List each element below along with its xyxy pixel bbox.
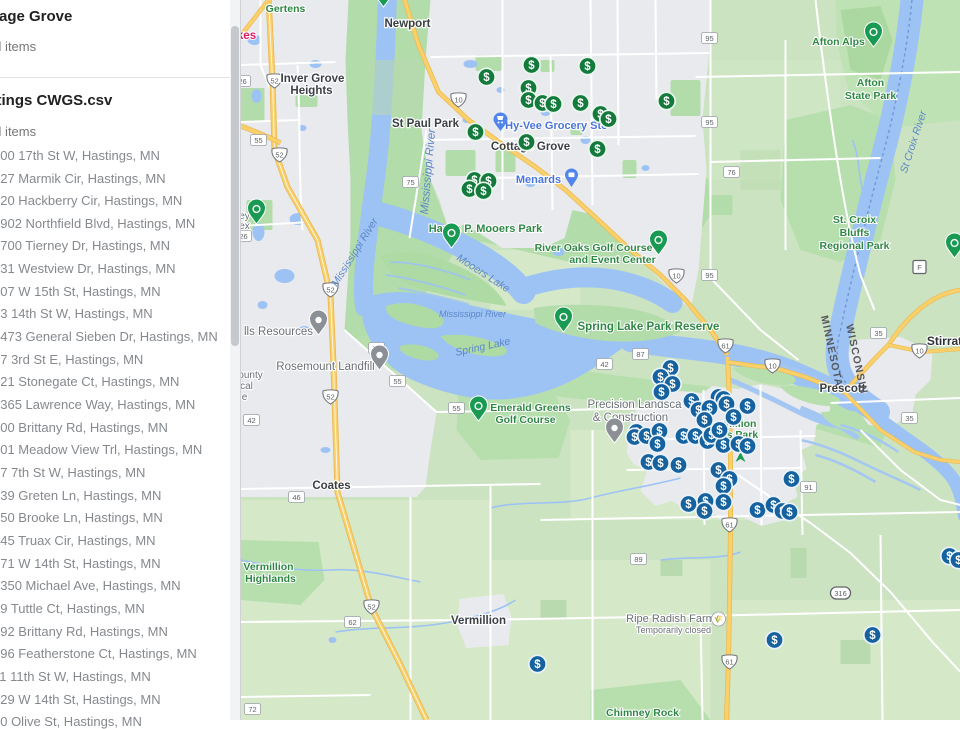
svg-text:Newport: Newport xyxy=(385,18,431,30)
svg-text:ounty: ounty xyxy=(241,370,263,381)
svg-text:and Event Center: and Event Center xyxy=(569,254,655,266)
svg-text:42: 42 xyxy=(600,360,608,369)
svg-text:52: 52 xyxy=(326,286,334,295)
svg-text:Highlands: Highlands xyxy=(245,573,296,585)
svg-text:95: 95 xyxy=(705,118,713,127)
svg-text:55: 55 xyxy=(393,377,401,386)
svg-text:Emerald Greens: Emerald Greens xyxy=(490,402,571,414)
svg-text:Bluffs: Bluffs xyxy=(840,227,870,239)
svg-text:42: 42 xyxy=(247,416,255,425)
svg-text:52: 52 xyxy=(326,393,334,402)
svg-text:F: F xyxy=(917,263,922,272)
svg-text:lls Resources: lls Resources xyxy=(244,326,313,338)
svg-text:Afton: Afton xyxy=(857,77,884,89)
svg-text:kes: kes xyxy=(241,30,256,42)
svg-text:Coates: Coates xyxy=(312,480,350,492)
svg-text:76: 76 xyxy=(727,168,735,177)
svg-text:61: 61 xyxy=(725,521,733,530)
svg-text:Vermillion: Vermillion xyxy=(243,561,293,573)
svg-text:St. Croix: St. Croix xyxy=(833,214,876,226)
svg-text:10: 10 xyxy=(672,272,680,281)
svg-text:91: 91 xyxy=(804,483,812,492)
svg-text:72: 72 xyxy=(248,705,256,714)
svg-text:10: 10 xyxy=(915,347,923,356)
svg-text:35: 35 xyxy=(874,329,882,338)
svg-text:52: 52 xyxy=(367,603,375,612)
svg-text:State Park: State Park xyxy=(845,90,897,102)
svg-text:Temporarily closed: Temporarily closed xyxy=(636,625,711,635)
svg-text:Stirrat: Stirrat xyxy=(927,334,960,348)
svg-text:52: 52 xyxy=(275,151,283,160)
svg-text:Inver Grove: Inver Grove xyxy=(281,73,345,85)
svg-text:75: 75 xyxy=(406,178,414,187)
svg-text:62: 62 xyxy=(348,618,356,627)
svg-text:Hy-Vee Grocery Sto: Hy-Vee Grocery Sto xyxy=(505,120,608,132)
svg-text:61: 61 xyxy=(725,658,733,667)
svg-text:Regional Park: Regional Park xyxy=(819,240,889,252)
svg-text:🌾: 🌾 xyxy=(714,615,723,624)
svg-text:Heights: Heights xyxy=(290,85,332,97)
svg-text:55: 55 xyxy=(254,136,262,145)
svg-text:55: 55 xyxy=(452,404,460,413)
svg-text:Chimney Rock: Chimney Rock xyxy=(606,707,679,719)
svg-text:61: 61 xyxy=(721,342,729,351)
svg-text:95: 95 xyxy=(705,271,713,280)
svg-text:St Paul Park: St Paul Park xyxy=(392,118,460,130)
svg-text:Golf Course: Golf Course xyxy=(495,414,555,426)
svg-text:10: 10 xyxy=(454,96,462,105)
svg-text:ex: ex xyxy=(241,221,250,232)
svg-text:Gertens: Gertens xyxy=(266,3,306,15)
svg-text:Mississippi River: Mississippi River xyxy=(439,309,507,319)
svg-text:Precision Landsca: Precision Landsca xyxy=(588,399,683,411)
svg-text:10: 10 xyxy=(768,362,776,371)
svg-text:Rosemount Landfill: Rosemount Landfill xyxy=(276,361,374,373)
svg-text:Ripe Radish Farm: Ripe Radish Farm xyxy=(626,613,715,625)
svg-text:35: 35 xyxy=(905,414,913,423)
svg-text:e: e xyxy=(242,392,248,403)
svg-text:87: 87 xyxy=(636,350,644,359)
svg-text:316: 316 xyxy=(834,589,847,598)
svg-text:52: 52 xyxy=(270,77,278,86)
svg-text:46: 46 xyxy=(292,493,300,502)
svg-text:26: 26 xyxy=(241,77,247,86)
svg-text:Afton Alps: Afton Alps xyxy=(812,36,865,48)
svg-text:Spring Lake Park Reserve: Spring Lake Park Reserve xyxy=(578,321,720,333)
svg-text:95: 95 xyxy=(705,34,713,43)
svg-text:Vermillion: Vermillion xyxy=(451,615,506,627)
svg-text:Menards: Menards xyxy=(516,174,561,186)
svg-text:cal: cal xyxy=(241,381,253,392)
svg-text:89: 89 xyxy=(634,555,642,564)
svg-text:River Oaks Golf Course: River Oaks Golf Course xyxy=(535,242,653,254)
svg-text:26: 26 xyxy=(241,232,248,241)
